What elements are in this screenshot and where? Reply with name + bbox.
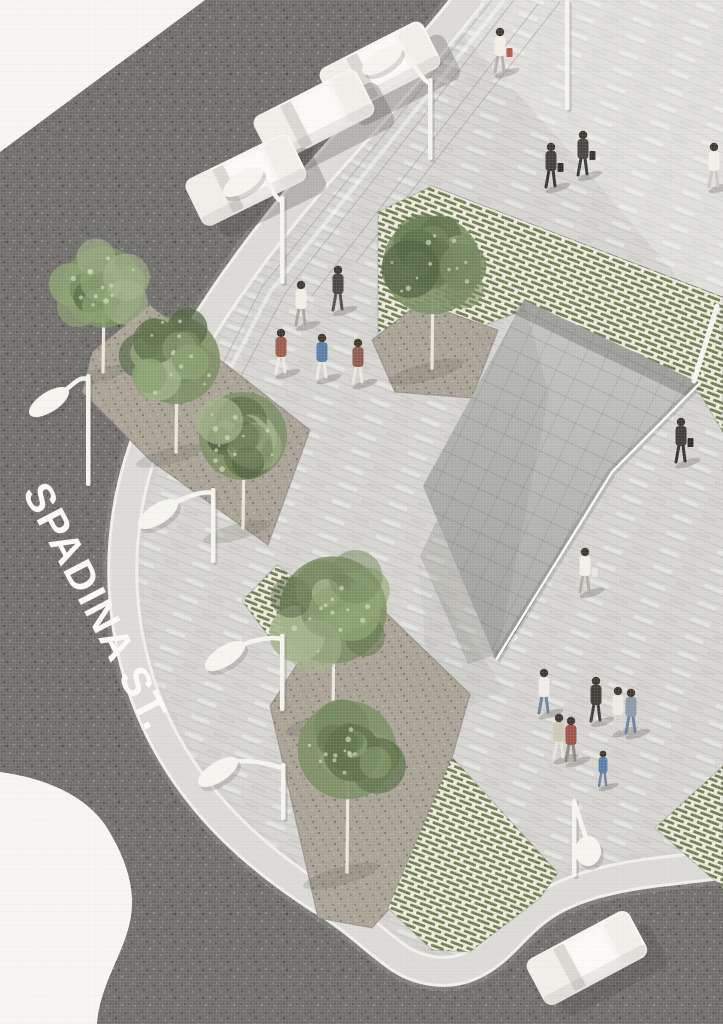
site-rendering-svg: SPADINA ST. [0, 0, 723, 1024]
tree-foliage-highlight [214, 448, 218, 452]
tree-foliage-highlight [71, 276, 76, 281]
tree-foliage-highlight [308, 617, 311, 620]
pedestrian-head [614, 687, 622, 695]
pedestrian-torso [578, 139, 589, 159]
pedestrian-head [677, 418, 685, 426]
pedestrian-torso [580, 556, 591, 576]
pedestrian-head [555, 714, 563, 722]
tree-foliage-highlight [360, 618, 365, 623]
tree-foliage-highlight [331, 598, 335, 602]
tree-foliage-highlight [345, 737, 351, 743]
site-plan-illustration: SPADINA ST. [0, 0, 723, 1024]
tree-foliage-highlight [225, 435, 230, 440]
pedestrian-head [710, 143, 718, 151]
pedestrian-bag [592, 568, 598, 577]
pedestrian-head [547, 143, 555, 151]
tree-foliage-highlight [452, 238, 457, 243]
pedestrian-head [318, 334, 326, 342]
tree-foliage-highlight [428, 262, 432, 266]
tree-foliage-highlight [189, 355, 193, 359]
tree-foliage-highlight [346, 608, 349, 611]
tree-foliage-highlight [132, 268, 135, 271]
tree-foliage-highlight [153, 390, 157, 394]
tree-foliage-highlight [353, 752, 357, 756]
tree-foliage-highlight [211, 413, 213, 415]
tree-foliage-highlight [406, 286, 411, 291]
lamp-post [280, 196, 285, 284]
pedestrian-torso [333, 274, 344, 294]
pedestrian-head [567, 717, 575, 725]
pedestrian-bag [507, 48, 513, 57]
pedestrian-head [496, 28, 504, 36]
pedestrian-head [297, 281, 305, 289]
pedestrian-torso [317, 342, 328, 362]
tree-foliage-highlight [242, 435, 245, 438]
tree-foliage-highlight [161, 321, 164, 324]
tree-foliage-highlight [349, 727, 354, 732]
tree-foliage-highlight [101, 286, 105, 290]
pedestrian-head [334, 266, 342, 274]
tree-foliage-blob [359, 747, 391, 779]
lamp-post [281, 763, 286, 820]
lamp-post [280, 634, 285, 711]
pedestrian-torso [591, 685, 602, 705]
tree-foliage-highlight [233, 415, 238, 420]
tree-foliage-highlight [103, 298, 109, 304]
tree-foliage-highlight [365, 604, 370, 609]
tree-foliage-blob [329, 550, 382, 603]
tree-foliage-highlight [456, 267, 459, 270]
tree-foliage-highlight [94, 294, 98, 298]
tree-foliage-highlight [177, 334, 181, 338]
pedestrian-head [277, 329, 285, 337]
tree-foliage-highlight [319, 606, 323, 610]
tree-foliage-blob [196, 397, 243, 444]
tree-foliage-highlight [271, 454, 274, 457]
tree-foliage-highlight [465, 279, 470, 284]
pedestrian-bag [590, 151, 596, 160]
tree-foliage-highlight [332, 758, 336, 762]
tree-foliage-highlight [319, 759, 323, 763]
pedestrian-head [581, 548, 589, 556]
tree-foliage-highlight [213, 458, 218, 463]
tree-foliage-highlight [324, 603, 328, 607]
tree-foliage-highlight [219, 466, 225, 472]
tree-foliage-highlight [426, 240, 431, 245]
lamp-post [86, 374, 91, 486]
tree-foliage-highlight [110, 293, 114, 297]
pedestrian-head [592, 677, 600, 685]
pedestrian-head [627, 689, 635, 697]
pedestrian-torso [613, 695, 624, 715]
tree-foliage-blob [82, 288, 117, 323]
pedestrian-torso [676, 426, 687, 446]
tree-foliage-highlight [150, 334, 153, 337]
tree-foliage-highlight [218, 444, 220, 446]
pedestrian-head [540, 669, 548, 677]
tree-foliage-highlight [344, 749, 347, 752]
pedestrian-torso [353, 347, 364, 367]
tree-foliage-highlight [464, 261, 467, 264]
tree-foliage-highlight [92, 303, 95, 306]
pedestrian-torso [709, 151, 720, 171]
pedestrian-torso [626, 697, 637, 717]
tree-foliage-highlight [207, 374, 211, 378]
tree-foliage-highlight [343, 771, 347, 775]
tree-foliage-highlight [338, 628, 342, 632]
tree-foliage-highlight [178, 320, 182, 324]
tree-foliage-highlight [330, 610, 335, 615]
tree-foliage-highlight [106, 256, 110, 260]
pedestrian-head [579, 131, 587, 139]
pedestrian-bag [558, 163, 564, 172]
pedestrian-torso [599, 757, 608, 773]
tree-foliage-highlight [233, 453, 237, 457]
pedestrian-torso [495, 36, 506, 56]
tree-foliage-highlight [333, 753, 337, 757]
tree-foliage-highlight [171, 351, 175, 355]
tree-foliage-highlight [416, 277, 419, 280]
tree-foliage-highlight [324, 752, 328, 756]
pedestrian-torso [546, 151, 557, 171]
tree-foliage-highlight [348, 752, 353, 757]
pedestrian-torso [566, 725, 577, 745]
tree-foliage-highlight [170, 373, 173, 376]
tree-foliage-highlight [203, 383, 206, 386]
tree-foliage-highlight [291, 625, 297, 631]
tree-foliage-highlight [400, 290, 403, 293]
lamp-post [565, 0, 570, 110]
pedestrian-head [600, 751, 607, 758]
tree-foliage-highlight [179, 364, 184, 369]
lamp-post [211, 488, 216, 563]
tree-foliage-highlight [213, 426, 219, 432]
pedestrian-head [354, 339, 362, 347]
tree-foliage-blob [132, 358, 167, 393]
pedestrian-torso [276, 337, 287, 357]
street-lamp [565, 0, 572, 112]
tree-foliage-highlight [265, 429, 269, 433]
pedestrian-torso [539, 677, 550, 697]
lamp-head [575, 836, 601, 866]
tree-foliage-blob [440, 243, 487, 290]
tree-foliage-highlight [447, 268, 451, 272]
pedestrian-torso [296, 289, 307, 309]
tree-foliage-highlight [109, 283, 113, 287]
tree-foliage-highlight [339, 586, 344, 591]
tree-foliage-highlight [391, 261, 394, 264]
tree-foliage-highlight [87, 269, 93, 275]
tree-foliage-highlight [79, 295, 83, 299]
pedestrian-bag [688, 438, 694, 447]
pedestrian-torso [554, 722, 565, 742]
tree-foliage-highlight [308, 744, 311, 747]
lamp-post [428, 78, 433, 160]
tree-foliage-highlight [317, 650, 320, 653]
tree-foliage-highlight [433, 234, 436, 237]
